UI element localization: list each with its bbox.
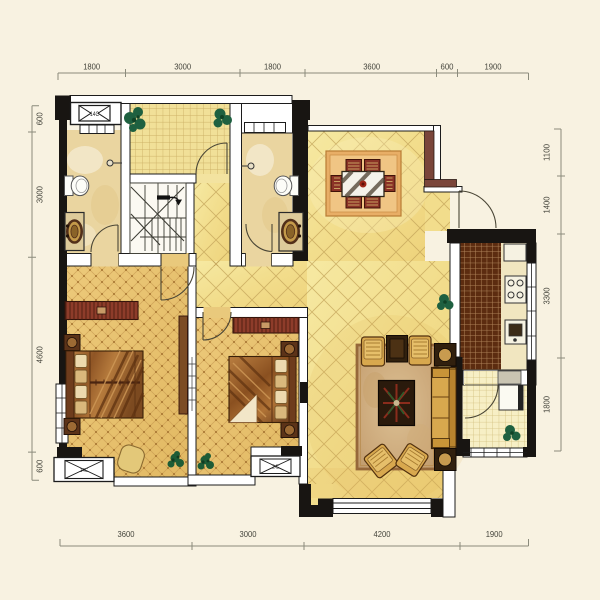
svg-text:600: 600	[35, 459, 45, 472]
svg-text:3300: 3300	[542, 287, 552, 304]
svg-text:3000: 3000	[174, 62, 191, 72]
svg-text:4200: 4200	[374, 529, 391, 539]
svg-text:2C: 2C	[272, 465, 280, 471]
svg-text:600: 600	[441, 62, 454, 72]
svg-text:1400: 1400	[542, 196, 552, 213]
svg-text:1900: 1900	[486, 529, 503, 539]
svg-text:1800: 1800	[83, 62, 100, 72]
svg-text:3000: 3000	[35, 186, 45, 203]
svg-text:3600: 3600	[363, 62, 380, 72]
svg-text:3600: 3600	[118, 529, 135, 539]
svg-text:1100: 1100	[542, 144, 552, 161]
svg-text:1800: 1800	[264, 62, 281, 72]
svg-text:14C: 14C	[90, 112, 100, 118]
svg-text:600: 600	[35, 112, 45, 125]
svg-text:1800: 1800	[542, 396, 552, 413]
svg-text:4600: 4600	[35, 346, 45, 363]
svg-text:1900: 1900	[485, 62, 502, 72]
svg-text:3000: 3000	[240, 529, 257, 539]
svg-text:14C: 14C	[80, 468, 88, 474]
